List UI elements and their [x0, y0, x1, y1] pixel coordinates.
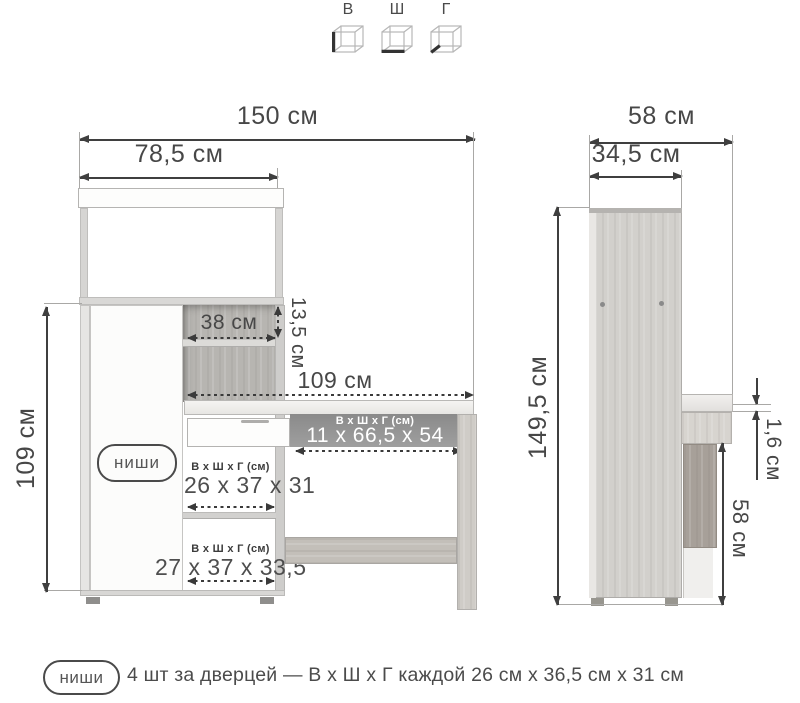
door-niche-badge-label: ниши [114, 453, 160, 473]
screw-cap [600, 302, 605, 307]
desk-leg-front [457, 414, 477, 610]
legend-width-label: Ш [382, 1, 412, 19]
cabinet-bottom [80, 590, 285, 596]
side-upper-depth-label: 34,5 см [590, 140, 682, 169]
niche-shelf [183, 512, 276, 519]
hutch-top-board [78, 188, 284, 208]
side-upper-depth-dimension [590, 176, 682, 178]
door-niche-2-dimension [188, 580, 274, 582]
extension-line [473, 132, 474, 402]
upper-niche-height-dimension [277, 307, 279, 337]
legend-height-label: В [333, 1, 363, 19]
extension-line [732, 135, 733, 397]
height-cube-icon [329, 21, 369, 59]
side-total-height-label: 149,5 см [524, 322, 553, 492]
depth-cube-icon [427, 21, 467, 59]
door-niche-1-size: 26 х 37 х 31 [184, 472, 277, 499]
front-total-width-label: 150 см [80, 102, 475, 131]
footnote-text: 4 шт за дверцей — В х Ш х Г каждой 26 см… [127, 664, 684, 687]
cabinet-foot [86, 597, 100, 604]
door-niche-2-size: 27 х 37 х 33,5 [155, 554, 305, 581]
extension-line [44, 303, 82, 304]
side-total-depth-label: 58 см [590, 102, 733, 131]
under-desk-height-dimension [722, 443, 724, 605]
legend-depth-label: Г [431, 1, 461, 19]
desk-leg-side-lower [683, 548, 713, 598]
extension-line [681, 170, 682, 208]
extension-line [557, 207, 590, 208]
desk-top-side [681, 394, 733, 412]
extension-line [589, 135, 590, 208]
desk-drawer [187, 418, 290, 447]
upper-niche-height-label: 13,5 см [286, 293, 309, 373]
under-desk-height-label: 58 см [727, 485, 753, 573]
side-panel-top-edge [589, 208, 682, 213]
floor-line [557, 604, 724, 605]
top-thickness-dimension-lower [756, 411, 758, 480]
front-hutch-width-label: 78,5 см [80, 140, 278, 169]
side-panel-front-edge [589, 213, 596, 598]
door-niche-1-dimension [188, 506, 274, 508]
cabinet-height-dimension [46, 307, 48, 592]
cabinet-foot [260, 597, 274, 604]
hutch-left-post [80, 208, 88, 304]
side-total-height-dimension [557, 207, 559, 605]
upper-niche-width-dimension [188, 337, 275, 339]
upper-niche-shelf [183, 339, 275, 347]
hutch-right-post [275, 208, 283, 304]
drawer-handle [241, 420, 269, 423]
hutch-bottom-sill [79, 297, 284, 305]
desk-width-dimension [188, 394, 473, 396]
width-cube-icon [378, 21, 418, 59]
stretcher-beam [285, 537, 457, 564]
footnote-badge-label: ниши [59, 668, 103, 688]
footnote-badge: ниши [43, 660, 120, 695]
screw-cap [659, 301, 664, 306]
desk-apron-side [681, 412, 732, 444]
desk-top [184, 400, 474, 415]
desk-width-label: 109 см [285, 367, 385, 394]
door-niche-badge: ниши [97, 444, 177, 482]
side-panel [589, 208, 682, 598]
under-desk-niche-dimension [296, 450, 461, 452]
cabinet-left-side [80, 305, 90, 592]
upper-niche-width-label: 38 см [183, 311, 275, 335]
front-hutch-width-dimension [80, 177, 278, 179]
cabinet-height-label: 109 см [12, 392, 41, 504]
desk-leg-side [683, 444, 717, 548]
under-desk-niche-size: 11 х 66,5 х 54 [290, 424, 460, 448]
top-thickness-dimension-upper [756, 378, 758, 404]
dimension-diagram: В Ш Г 150 см 78,5 см [0, 0, 800, 703]
top-thickness-label: 1,6 см [761, 412, 785, 486]
